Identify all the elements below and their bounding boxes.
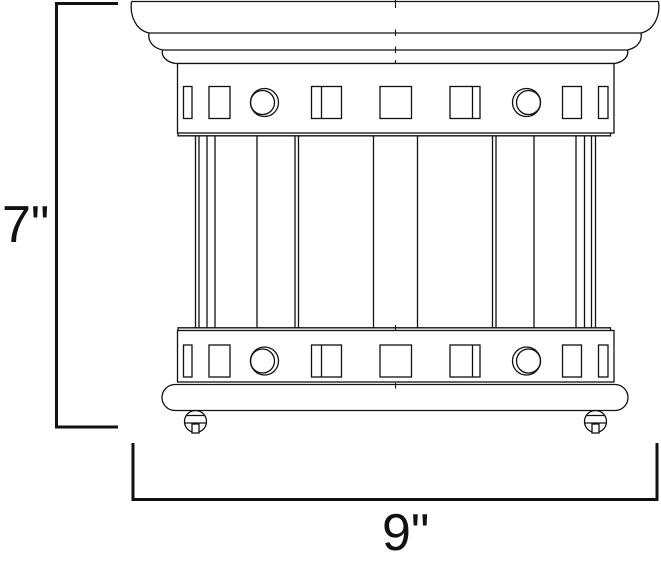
height-dimension-label: 7" <box>2 196 49 254</box>
thumb-screw-right <box>585 411 607 434</box>
top-frieze-band-face <box>178 64 615 134</box>
top-frieze-band <box>178 64 615 136</box>
cage-bars <box>196 136 596 328</box>
width-dimension-bracket <box>133 443 657 500</box>
width-dimension: 9" <box>133 443 657 562</box>
screw-notch <box>192 424 199 433</box>
lantern-line-drawing: 7" 9" <box>0 0 661 565</box>
height-dimension: 7" <box>2 4 118 428</box>
bottom-frieze-band <box>178 325 615 382</box>
screw-notch <box>592 424 599 433</box>
screw-slot-lines <box>585 416 607 424</box>
width-dimension-label: 9" <box>382 504 429 562</box>
dimension-diagram: 7" 9" <box>0 0 661 565</box>
lantern-cap <box>131 0 659 67</box>
screw-slot-lines <box>185 416 207 424</box>
bottom-frieze-band-face <box>178 331 615 383</box>
thumb-screw-left <box>185 411 207 434</box>
height-dimension-bracket <box>57 4 119 428</box>
